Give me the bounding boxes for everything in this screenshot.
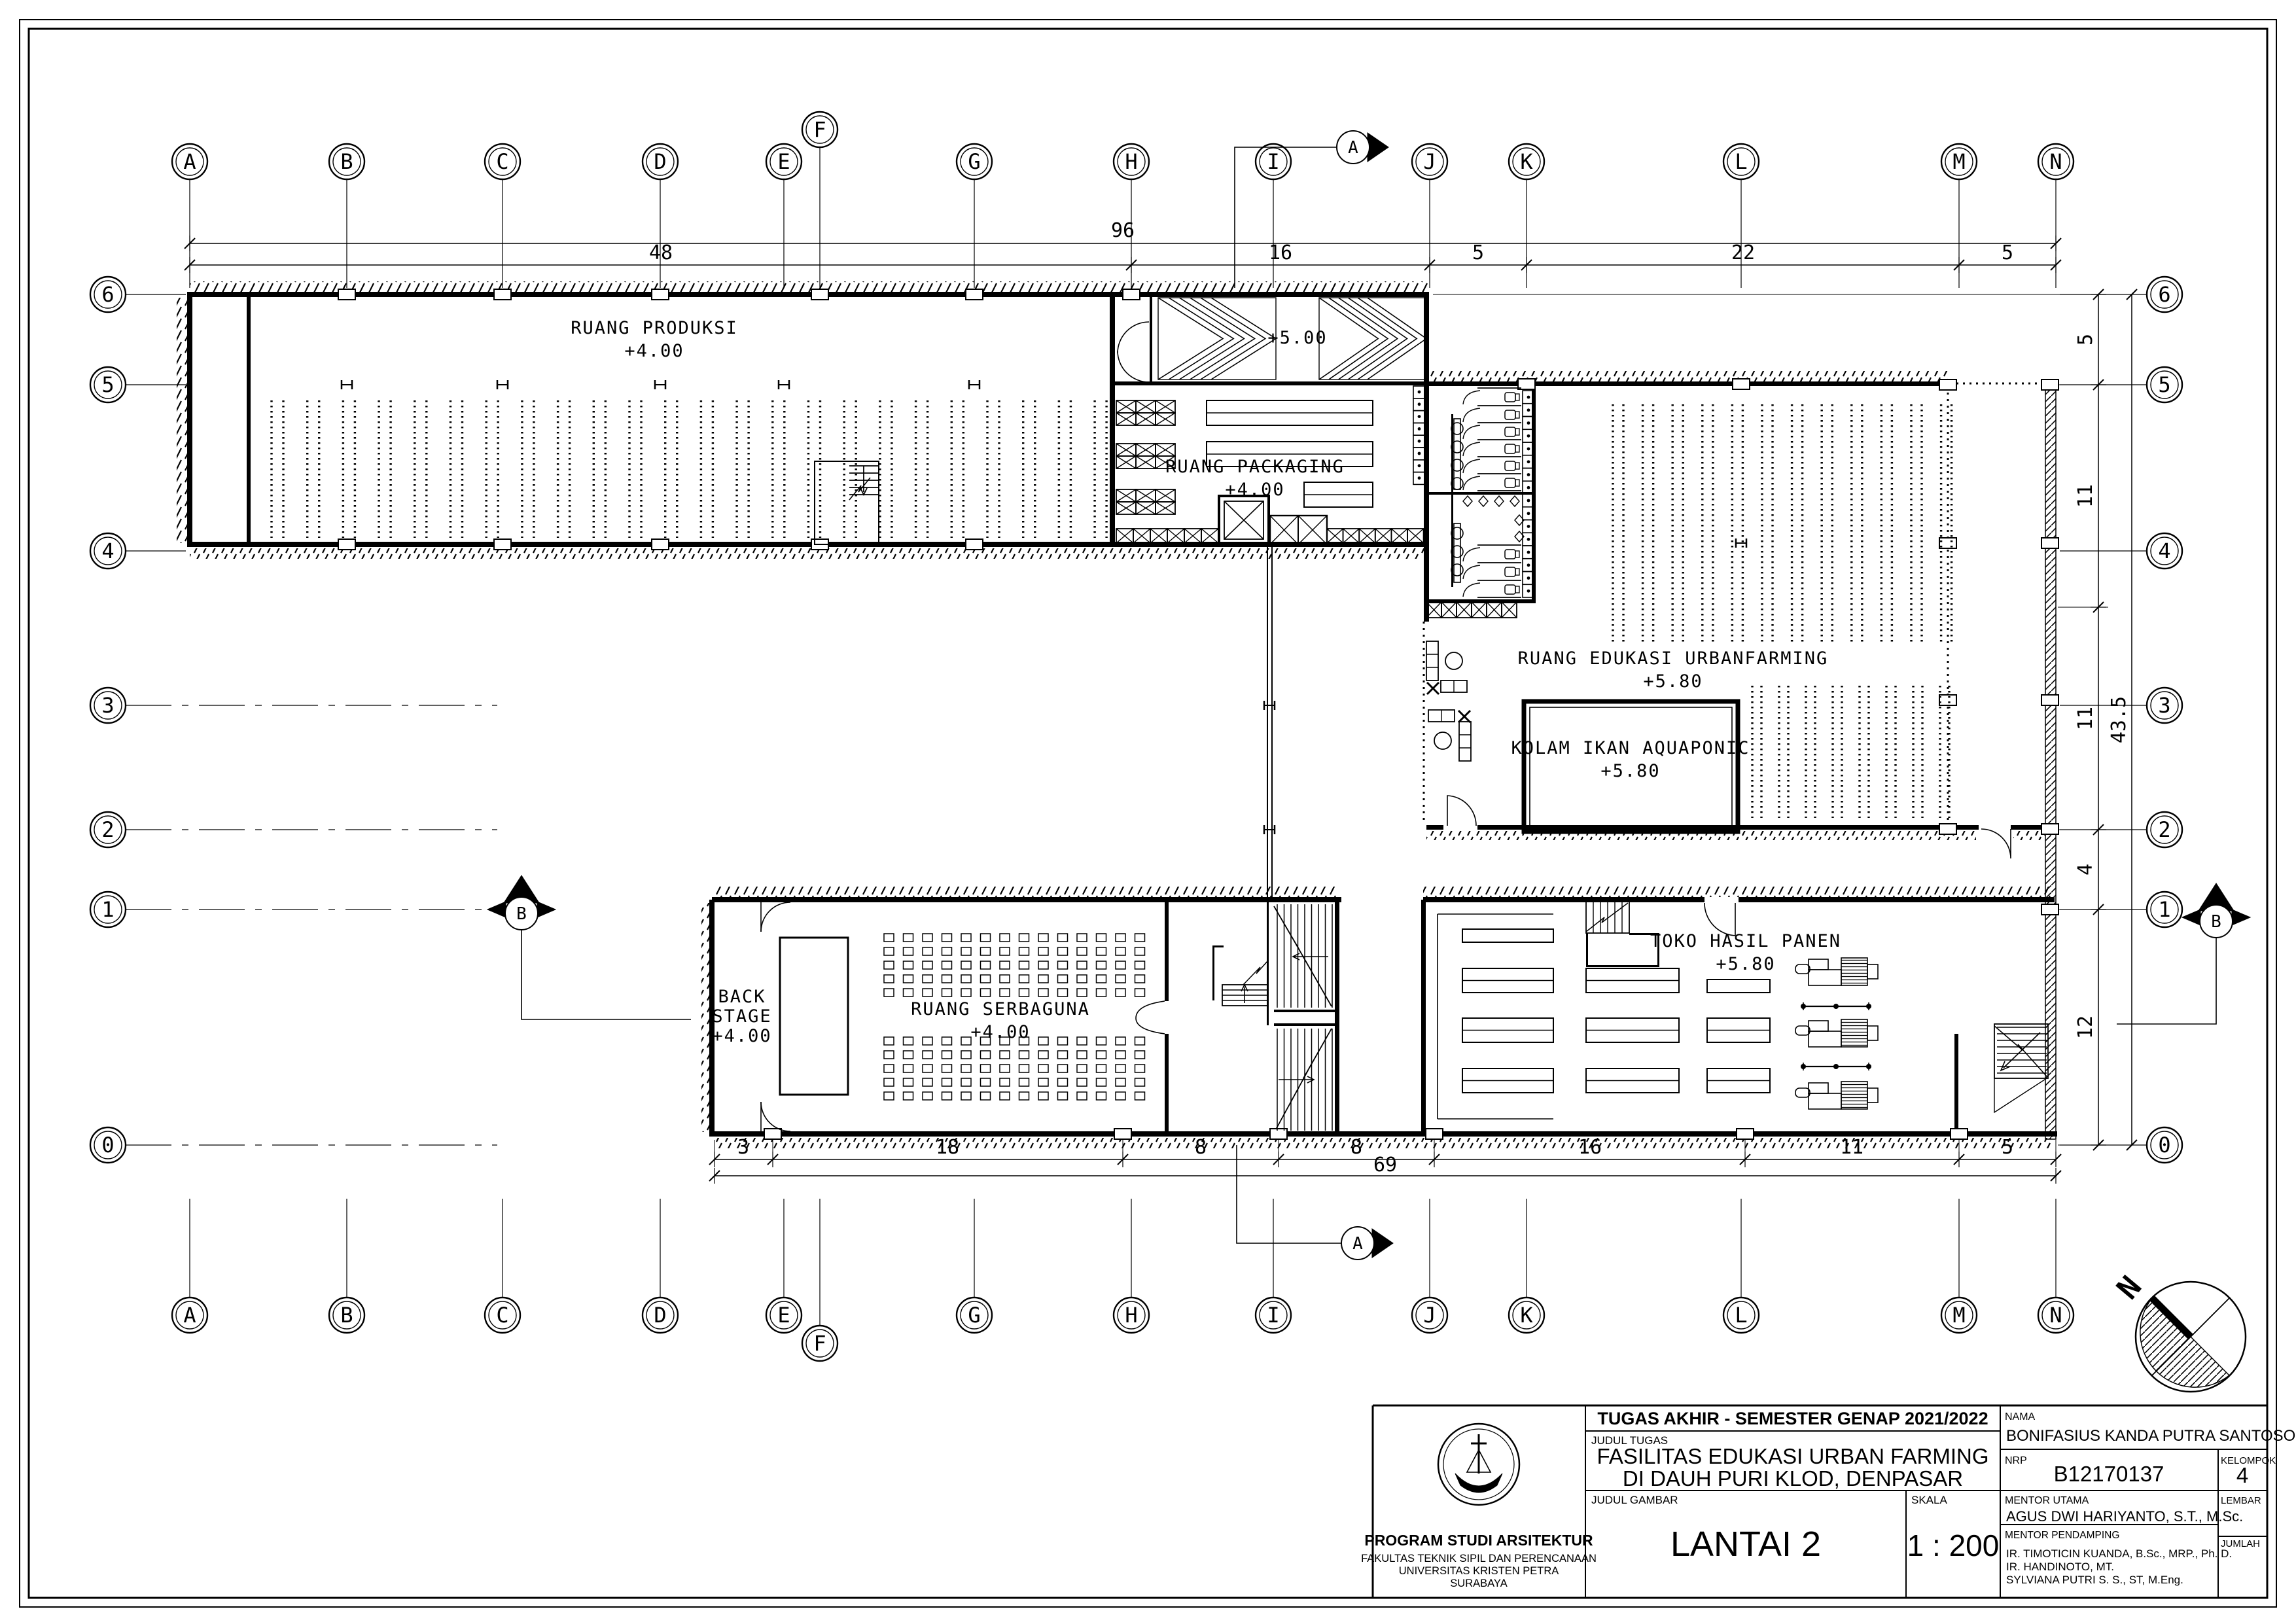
grid-bubble-top-label: A bbox=[183, 149, 196, 174]
grid-bubble-right-label: 6 bbox=[2158, 282, 2170, 307]
room-label: +5.80 bbox=[1716, 954, 1775, 974]
coffee-table bbox=[1445, 652, 1462, 669]
audience-chair bbox=[1000, 1051, 1010, 1059]
grid-bubble-right-label: 0 bbox=[2158, 1133, 2170, 1157]
grid-bubble-right-label: 4 bbox=[2158, 538, 2170, 563]
toilet-bowl bbox=[1505, 393, 1515, 402]
wall bbox=[1110, 294, 1115, 546]
door-swing bbox=[761, 1102, 790, 1131]
audience-chair bbox=[1077, 989, 1087, 997]
toilet-tank bbox=[1515, 429, 1519, 435]
wall bbox=[1212, 945, 1224, 947]
audience-chair bbox=[1116, 947, 1125, 955]
audience-chair bbox=[1019, 1078, 1029, 1086]
audience-chair bbox=[1116, 934, 1125, 942]
audience-chair bbox=[1019, 989, 1029, 997]
column-marker bbox=[1939, 824, 1956, 834]
wall-hatch bbox=[715, 887, 1337, 897]
audience-chair bbox=[884, 934, 894, 942]
audience-chair bbox=[1116, 1037, 1125, 1045]
locker-dot bbox=[1527, 538, 1530, 541]
audience-chair bbox=[1038, 989, 1048, 997]
room-label: TOKO HASIL PANEN bbox=[1650, 931, 1841, 951]
tb-program: PROGRAM STUDI ARSITEKTUR bbox=[1364, 1532, 1593, 1549]
toilet-bowl bbox=[1505, 478, 1515, 487]
north-arrow: N bbox=[2110, 1269, 2246, 1392]
column-marker bbox=[338, 539, 355, 550]
drawing-sheet: AABBCCDDEEFFGGHHIIJJKKLLMMNN665544332211… bbox=[0, 0, 2296, 1624]
audience-chair bbox=[1135, 1065, 1145, 1072]
cashier-chair bbox=[1795, 1026, 1810, 1035]
audience-chair bbox=[981, 975, 991, 983]
sofa bbox=[1459, 722, 1471, 761]
audience-chair bbox=[884, 1078, 894, 1086]
audience-chair bbox=[1077, 975, 1087, 983]
audience-chair bbox=[1000, 989, 1010, 997]
audience-chair bbox=[961, 1065, 971, 1072]
grid-bubble-bottom-label: L bbox=[1735, 1303, 1747, 1328]
audience-chair bbox=[904, 989, 913, 997]
display-rail-dot bbox=[1833, 1064, 1839, 1069]
grid-bubble-left-label: 1 bbox=[101, 897, 114, 922]
grid-bubble-top-label: N bbox=[2049, 149, 2062, 174]
audience-chair bbox=[1019, 1092, 1029, 1100]
audience-chair bbox=[1077, 961, 1087, 969]
tb-header: TUGAS AKHIR - SEMESTER GENAP 2021/2022 bbox=[1597, 1409, 1988, 1428]
stair-break-line bbox=[1243, 961, 1268, 985]
audience-chair bbox=[1058, 1065, 1068, 1072]
wall bbox=[1423, 897, 1704, 902]
column-marker bbox=[494, 289, 511, 300]
audience-chair bbox=[981, 1051, 991, 1059]
ramp-chevron bbox=[1319, 298, 1378, 380]
store-shelf bbox=[1462, 929, 1553, 942]
grid-bubble-right-label: 2 bbox=[2158, 817, 2170, 842]
audience-chair bbox=[1097, 1037, 1106, 1045]
tb-mentor-2: IR. HANDINOTO, MT. bbox=[2006, 1561, 2114, 1573]
section-arrow bbox=[1372, 1229, 1393, 1258]
locker-dot bbox=[1527, 563, 1530, 567]
locker-dot bbox=[1527, 486, 1530, 489]
urinal bbox=[1494, 496, 1504, 506]
tb-kelompok: 4 bbox=[2236, 1463, 2248, 1487]
wall bbox=[1112, 381, 1429, 385]
audience-chair bbox=[1135, 1037, 1145, 1045]
column-marker bbox=[1114, 1129, 1131, 1139]
audience-chair bbox=[884, 1092, 894, 1100]
tb-mentor-utama: AGUS DWI HARIYANTO, S.T., M.Sc. bbox=[2006, 1508, 2243, 1525]
column-marker bbox=[1733, 379, 1750, 389]
door-swing bbox=[1981, 829, 2011, 858]
floor-plan-canvas: AABBCCDDEEFFGGHHIIJJKKLLMMNN665544332211… bbox=[0, 0, 2296, 1624]
wall bbox=[1274, 1023, 1337, 1026]
audience-chair bbox=[884, 1065, 894, 1072]
grid-bubble-top-label: B bbox=[340, 149, 353, 174]
dim-bottom-total: 69 bbox=[1373, 1154, 1397, 1176]
cashier-chair bbox=[1795, 964, 1810, 974]
audience-chair bbox=[1135, 947, 1145, 955]
toilet-bowl bbox=[1505, 550, 1515, 559]
urinal bbox=[1463, 496, 1472, 506]
tb-judul-gambar: LANTAI 2 bbox=[1670, 1525, 1821, 1564]
locker-dot bbox=[1527, 590, 1530, 593]
audience-chair bbox=[1058, 1051, 1068, 1059]
toilet-tank bbox=[1515, 463, 1519, 469]
wall-hatch bbox=[190, 548, 1429, 559]
audience-chair bbox=[1019, 934, 1029, 942]
locker-dot bbox=[1418, 415, 1421, 418]
audience-chair bbox=[1097, 947, 1106, 955]
audience-chair bbox=[1097, 1051, 1106, 1059]
room-label: KOLAM IKAN AQUAPONIC bbox=[1511, 738, 1750, 758]
grid-bubble-top-label: K bbox=[1520, 149, 1533, 174]
audience-chair bbox=[1116, 1092, 1125, 1100]
grid-bubble-bottom-label: B bbox=[340, 1303, 353, 1328]
room-label: RUANG PACKAGING bbox=[1165, 457, 1345, 477]
column-marker bbox=[2041, 380, 2058, 390]
locker-dot bbox=[1527, 512, 1530, 515]
audience-chair bbox=[1077, 1037, 1087, 1045]
audience-chair bbox=[1097, 961, 1106, 969]
tb-kota: SURABAYA bbox=[1450, 1578, 1507, 1589]
audience-chair bbox=[1000, 1092, 1010, 1100]
audience-chair bbox=[1116, 989, 1125, 997]
audience-chair bbox=[1038, 1051, 1048, 1059]
audience-chair bbox=[1038, 934, 1048, 942]
audience-chair bbox=[981, 961, 991, 969]
grid-bubble-right-label: 5 bbox=[2158, 372, 2170, 397]
dim-right-seg: 5 bbox=[2074, 334, 2097, 345]
grid-bubble-right-label: 1 bbox=[2158, 897, 2170, 922]
locker-dot bbox=[1527, 408, 1530, 412]
column-marker bbox=[652, 539, 669, 550]
dim-top-seg: 16 bbox=[1269, 241, 1292, 264]
audience-chair bbox=[1135, 1092, 1145, 1100]
column-marker bbox=[1951, 1129, 1968, 1139]
grid-bubble-top-label: D bbox=[654, 149, 666, 174]
tb-judul-tugas-1: FASILITAS EDUKASI URBAN FARMING bbox=[1597, 1444, 1988, 1468]
audience-chair bbox=[1038, 1037, 1048, 1045]
tb-lembar-label: LEMBAR bbox=[2221, 1495, 2261, 1506]
section-line-b bbox=[521, 930, 691, 1019]
grid-bubble-left-label: 4 bbox=[101, 538, 114, 563]
audience-chair bbox=[961, 1051, 971, 1059]
wall bbox=[712, 897, 1341, 902]
grid-bubble-bottom-label: H bbox=[1125, 1303, 1137, 1328]
stall-door-swing bbox=[1463, 476, 1480, 490]
dim-top-seg: 5 bbox=[1472, 241, 1484, 264]
audience-chair bbox=[884, 989, 894, 997]
grid-bubble-bottom-label: G bbox=[968, 1303, 980, 1328]
audience-chair bbox=[1038, 947, 1048, 955]
grid-bubble-top-label: I bbox=[1267, 149, 1279, 174]
wall bbox=[1954, 1034, 1958, 1137]
toilet-bowl bbox=[1505, 444, 1515, 453]
audience-chair bbox=[1116, 1065, 1125, 1072]
audience-chair bbox=[961, 947, 971, 955]
dim-top-seg: 5 bbox=[2002, 241, 2013, 264]
grid-bubble-top-label: F bbox=[813, 117, 826, 142]
audience-chair bbox=[961, 934, 971, 942]
audience-chair bbox=[942, 961, 952, 969]
tb-mentor-1: IR. TIMOTICIN KUANDA, B.Sc., MRP., Ph. D… bbox=[2006, 1547, 2232, 1560]
audience-chair bbox=[961, 1078, 971, 1086]
grid-bubble-bottom-label: A bbox=[183, 1303, 196, 1328]
audience-chair bbox=[904, 1065, 913, 1072]
audience-chair bbox=[1000, 975, 1010, 983]
stall-door-swing bbox=[1463, 565, 1480, 579]
wall bbox=[187, 292, 192, 547]
toilet-bowl bbox=[1505, 461, 1515, 470]
locker-dot bbox=[1418, 402, 1421, 406]
wall bbox=[247, 294, 251, 542]
door-swing bbox=[761, 902, 790, 932]
audience-chair bbox=[1135, 975, 1145, 983]
audience-chair bbox=[981, 947, 991, 955]
checkout-register bbox=[1841, 958, 1867, 985]
stall-door-swing bbox=[1463, 408, 1480, 422]
grid-bubble-top-label: G bbox=[968, 149, 980, 174]
audience-chair bbox=[1038, 1065, 1048, 1072]
audience-chair bbox=[1097, 1092, 1106, 1100]
room-label: BACK bbox=[718, 987, 766, 1007]
university-logo bbox=[1438, 1424, 1519, 1505]
grid-bubble-bottom-label: C bbox=[496, 1303, 508, 1328]
audience-chair bbox=[1077, 1051, 1087, 1059]
grid-bubble-bottom-label: J bbox=[1423, 1303, 1436, 1328]
checkout-bagging bbox=[1867, 1088, 1878, 1103]
toilet-tank bbox=[1515, 569, 1519, 575]
tb-nrp-label: NRP bbox=[2005, 1455, 2027, 1466]
locker-dot bbox=[1418, 427, 1421, 431]
grid-bubble-top-label: M bbox=[1952, 149, 1965, 174]
audience-chair bbox=[904, 1078, 913, 1086]
audience-chair bbox=[942, 1051, 952, 1059]
wall bbox=[1426, 599, 1536, 603]
wall bbox=[1212, 945, 1214, 1000]
audience-chair bbox=[961, 1037, 971, 1045]
audience-chair bbox=[923, 1065, 932, 1072]
wall-hatch bbox=[177, 298, 187, 543]
sheet-border-outer bbox=[20, 20, 2276, 1607]
audience-chair bbox=[1019, 1051, 1029, 1059]
tb-jumlah-label: JUMLAH bbox=[2221, 1538, 2260, 1549]
wall-hatch bbox=[1426, 371, 1948, 381]
audience-chair bbox=[1038, 1092, 1048, 1100]
toilet-bowl bbox=[1505, 567, 1515, 576]
urinal bbox=[1510, 496, 1519, 506]
wall bbox=[1335, 900, 1339, 1137]
dim-right-seg: 12 bbox=[2074, 1015, 2097, 1039]
wall bbox=[1586, 965, 1659, 967]
wall bbox=[187, 292, 1429, 297]
display-rail-dot bbox=[1833, 1004, 1839, 1009]
audience-chair bbox=[1038, 975, 1048, 983]
audience-chair bbox=[942, 1065, 952, 1072]
grid-bubble-bottom-label: E bbox=[777, 1303, 790, 1328]
checkout-counter bbox=[1809, 1083, 1828, 1093]
dim-right-seg: 4 bbox=[2074, 864, 2097, 875]
audience-chair bbox=[981, 1092, 991, 1100]
wall bbox=[1426, 825, 1443, 830]
audience-chair bbox=[1135, 961, 1145, 969]
audience-chair bbox=[1116, 1051, 1125, 1059]
column-marker bbox=[966, 539, 983, 550]
checkout-counter bbox=[1809, 1021, 1828, 1031]
audience-chair bbox=[1077, 1092, 1087, 1100]
audience-chair bbox=[1058, 1092, 1068, 1100]
grid-bubble-left-label: 3 bbox=[101, 693, 114, 718]
column-marker bbox=[811, 289, 828, 300]
audience-chair bbox=[1038, 961, 1048, 969]
wall bbox=[1165, 1034, 1169, 1137]
grid-bubble-top-label: H bbox=[1125, 149, 1137, 174]
sofa bbox=[1426, 641, 1438, 680]
grid-bubble-bottom-label: M bbox=[1952, 1303, 1965, 1328]
section-marker-label: A bbox=[1352, 1234, 1363, 1254]
room-label: +5.80 bbox=[1600, 761, 1660, 781]
grid-bubble-bottom-label: F bbox=[813, 1331, 826, 1356]
stall-door-swing bbox=[1463, 391, 1480, 404]
wall bbox=[1451, 414, 1453, 587]
audience-chair bbox=[1019, 961, 1029, 969]
checkout-bagging bbox=[1867, 1026, 1878, 1040]
audience-chair bbox=[1000, 934, 1010, 942]
column-marker bbox=[1939, 695, 1956, 705]
audience-chair bbox=[942, 1037, 952, 1045]
stall-door-swing bbox=[1463, 425, 1480, 439]
column-marker bbox=[494, 539, 511, 550]
audience-chair bbox=[1019, 975, 1029, 983]
audience-chair bbox=[961, 975, 971, 983]
audience-chair bbox=[923, 1092, 932, 1100]
store-shelf bbox=[1707, 980, 1770, 993]
room-label: RUANG EDUKASI URBANFARMING bbox=[1518, 648, 1829, 669]
audience-chair bbox=[884, 947, 894, 955]
audience-chair bbox=[923, 934, 932, 942]
audience-chair bbox=[923, 947, 932, 955]
room-label: RUANG SERBAGUNA bbox=[911, 999, 1090, 1019]
audience-chair bbox=[1097, 1065, 1106, 1072]
grid-bubble-top-label: C bbox=[496, 149, 508, 174]
column-marker bbox=[1939, 380, 1956, 390]
column-marker bbox=[652, 289, 669, 300]
room-label: +4.00 bbox=[712, 1026, 771, 1046]
audience-chair bbox=[1135, 934, 1145, 942]
checkout-bagging bbox=[1867, 964, 1878, 979]
tb-skala: 1 : 200 bbox=[1907, 1528, 2000, 1562]
locker-dot bbox=[1418, 452, 1421, 455]
audience-chair bbox=[1058, 975, 1068, 983]
cashier-chair bbox=[1795, 1088, 1810, 1097]
audience-chair bbox=[1097, 934, 1106, 942]
grid-bubble-top-label: J bbox=[1423, 149, 1436, 174]
audience-chair bbox=[942, 1092, 952, 1100]
audience-chair bbox=[1097, 1078, 1106, 1086]
grid-bubble-right-label: 3 bbox=[2158, 693, 2170, 718]
audience-chair bbox=[981, 1065, 991, 1072]
wall bbox=[1274, 1010, 1337, 1012]
stall-door-swing bbox=[1463, 583, 1480, 597]
locker-dot bbox=[1527, 525, 1530, 528]
toilet-tank bbox=[1515, 394, 1519, 400]
door-swing bbox=[1136, 1001, 1165, 1018]
audience-chair bbox=[1058, 961, 1068, 969]
tb-mentor-pendamping-label: MENTOR PENDAMPING bbox=[2005, 1530, 2119, 1541]
tb-skala-label: SKALA bbox=[1911, 1494, 1947, 1506]
audience-chair bbox=[1135, 1051, 1145, 1059]
door-swing bbox=[1136, 1018, 1165, 1034]
stall-door-swing bbox=[1463, 442, 1480, 456]
locker-dot bbox=[1418, 440, 1421, 443]
section-arrow-wing bbox=[2182, 909, 2200, 925]
column-marker bbox=[2041, 904, 2058, 915]
checkout-register bbox=[1841, 1082, 1867, 1109]
audience-chair bbox=[923, 1078, 932, 1086]
column-marker bbox=[2041, 695, 2058, 705]
audience-chair bbox=[981, 989, 991, 997]
stage bbox=[780, 938, 848, 1095]
sheet-border-inner bbox=[29, 29, 2267, 1598]
room-label: +5.80 bbox=[1643, 671, 1703, 692]
toilet-tank bbox=[1515, 586, 1519, 593]
sink-counter bbox=[1454, 419, 1460, 489]
audience-chair bbox=[884, 1037, 894, 1045]
audience-chair bbox=[1135, 1078, 1145, 1086]
audience-chair bbox=[1019, 947, 1029, 955]
audience-chair bbox=[904, 1037, 913, 1045]
section-arrow bbox=[1368, 133, 1388, 162]
door-swing bbox=[1447, 796, 1476, 826]
grid-bubble-top-label: L bbox=[1735, 149, 1747, 174]
grid-bubble-bottom-label: K bbox=[1520, 1303, 1533, 1328]
audience-chair bbox=[942, 1078, 952, 1086]
audience-chair bbox=[884, 1051, 894, 1059]
column-marker bbox=[2041, 824, 2058, 834]
audience-chair bbox=[904, 1092, 913, 1100]
stall-door-swing bbox=[1463, 459, 1480, 473]
audience-chair bbox=[942, 975, 952, 983]
wall-hatched-east bbox=[2045, 381, 2056, 1139]
column-marker bbox=[338, 289, 355, 300]
audience-chair bbox=[923, 1037, 932, 1045]
audience-chair bbox=[923, 1051, 932, 1059]
dim-right-total: 43.5 bbox=[2108, 696, 2130, 743]
toilet-tank bbox=[1515, 551, 1519, 557]
section-marker-label: A bbox=[1348, 138, 1358, 158]
audience-chair bbox=[1019, 1065, 1029, 1072]
tb-nrp: B12170137 bbox=[2054, 1462, 2164, 1486]
locker-dot bbox=[1527, 473, 1530, 476]
audience-chair bbox=[1077, 1065, 1087, 1072]
audience-chair bbox=[1058, 1037, 1068, 1045]
audience-chair bbox=[1097, 989, 1106, 997]
section-marker-label: B bbox=[2211, 912, 2221, 932]
room-label: STAGE bbox=[712, 1006, 771, 1027]
audience-chair bbox=[1077, 947, 1087, 955]
wall bbox=[1421, 900, 1426, 1137]
grid-bubble-left-label: 5 bbox=[101, 372, 114, 397]
grid-bubble-left-label: 2 bbox=[101, 817, 114, 842]
audience-chair bbox=[1000, 961, 1010, 969]
wall bbox=[1165, 900, 1169, 1001]
checkout-counter bbox=[1809, 970, 1841, 985]
audience-chair bbox=[1038, 1078, 1048, 1086]
locker-dot bbox=[1418, 391, 1421, 394]
audience-chair bbox=[904, 975, 913, 983]
column-marker bbox=[1426, 1129, 1443, 1139]
toilet-bowl bbox=[1505, 427, 1515, 436]
